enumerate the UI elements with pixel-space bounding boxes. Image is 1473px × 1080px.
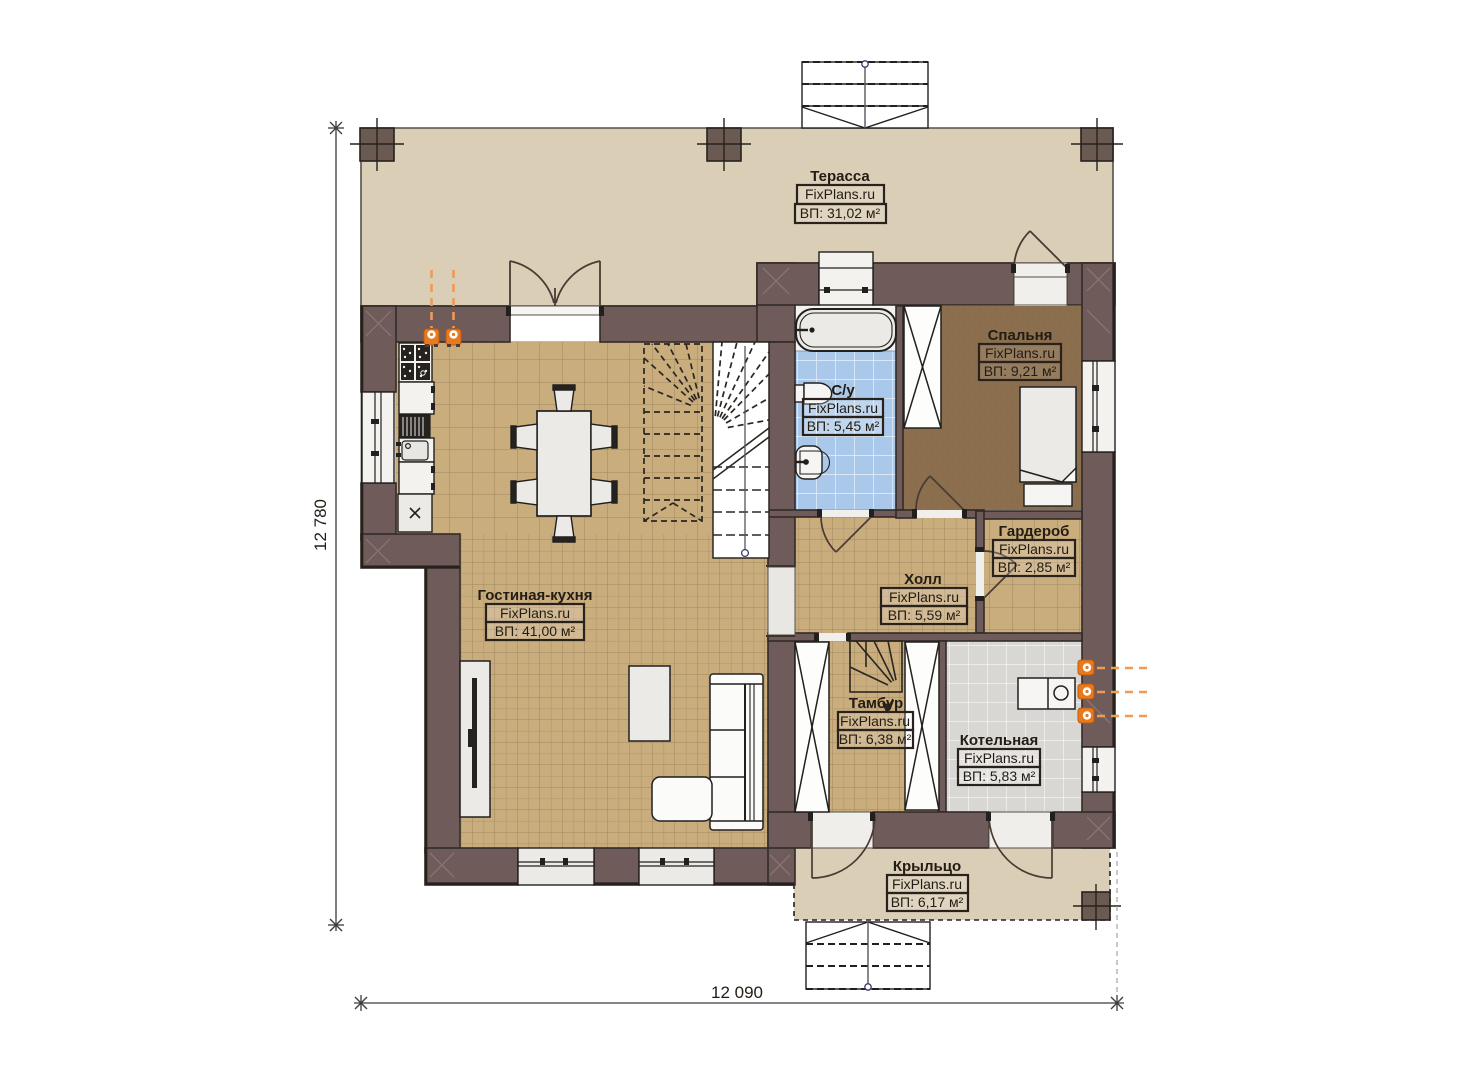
svg-text:FixPlans.ru: FixPlans.ru (889, 589, 959, 605)
svg-text:Крыльцо: Крыльцо (893, 858, 961, 875)
svg-text:ВП: 31,02 м²: ВП: 31,02 м² (800, 205, 881, 221)
svg-text:12 780: 12 780 (311, 499, 330, 551)
svg-text:ВП: 9,21 м²: ВП: 9,21 м² (984, 363, 1057, 379)
svg-text:ВП: 5,59 м²: ВП: 5,59 м² (888, 607, 961, 623)
svg-text:ВП: 2,85 м²: ВП: 2,85 м² (998, 559, 1071, 575)
svg-text:ВП: 41,00 м²: ВП: 41,00 м² (495, 623, 576, 639)
svg-text:Гостиная-кухня: Гостиная-кухня (478, 587, 593, 604)
svg-text:FixPlans.ru: FixPlans.ru (892, 876, 962, 892)
svg-text:FixPlans.ru: FixPlans.ru (985, 345, 1055, 361)
svg-text:FixPlans.ru: FixPlans.ru (840, 713, 910, 729)
svg-text:ВП: 6,17 м²: ВП: 6,17 м² (891, 894, 964, 910)
svg-text:ВП: 6,38 м²: ВП: 6,38 м² (839, 731, 912, 747)
svg-text:FixPlans.ru: FixPlans.ru (500, 605, 570, 621)
svg-text:Терасса: Терасса (810, 168, 870, 185)
svg-text:Котельная: Котельная (960, 732, 1039, 749)
svg-text:Гардероб: Гардероб (999, 523, 1070, 540)
svg-text:Холл: Холл (904, 571, 942, 588)
svg-text:FixPlans.ru: FixPlans.ru (805, 186, 875, 202)
svg-text:С/у: С/у (831, 382, 855, 399)
svg-text:12 090: 12 090 (711, 983, 763, 1002)
svg-text:ВП: 5,45 м²: ВП: 5,45 м² (807, 418, 880, 434)
svg-text:Спальня: Спальня (988, 327, 1053, 344)
svg-text:FixPlans.ru: FixPlans.ru (964, 750, 1034, 766)
svg-text:FixPlans.ru: FixPlans.ru (808, 400, 878, 416)
svg-text:FixPlans.ru: FixPlans.ru (999, 541, 1069, 557)
svg-text:ВП: 5,83 м²: ВП: 5,83 м² (963, 768, 1036, 784)
svg-text:Тамбур: Тамбур (849, 695, 903, 712)
